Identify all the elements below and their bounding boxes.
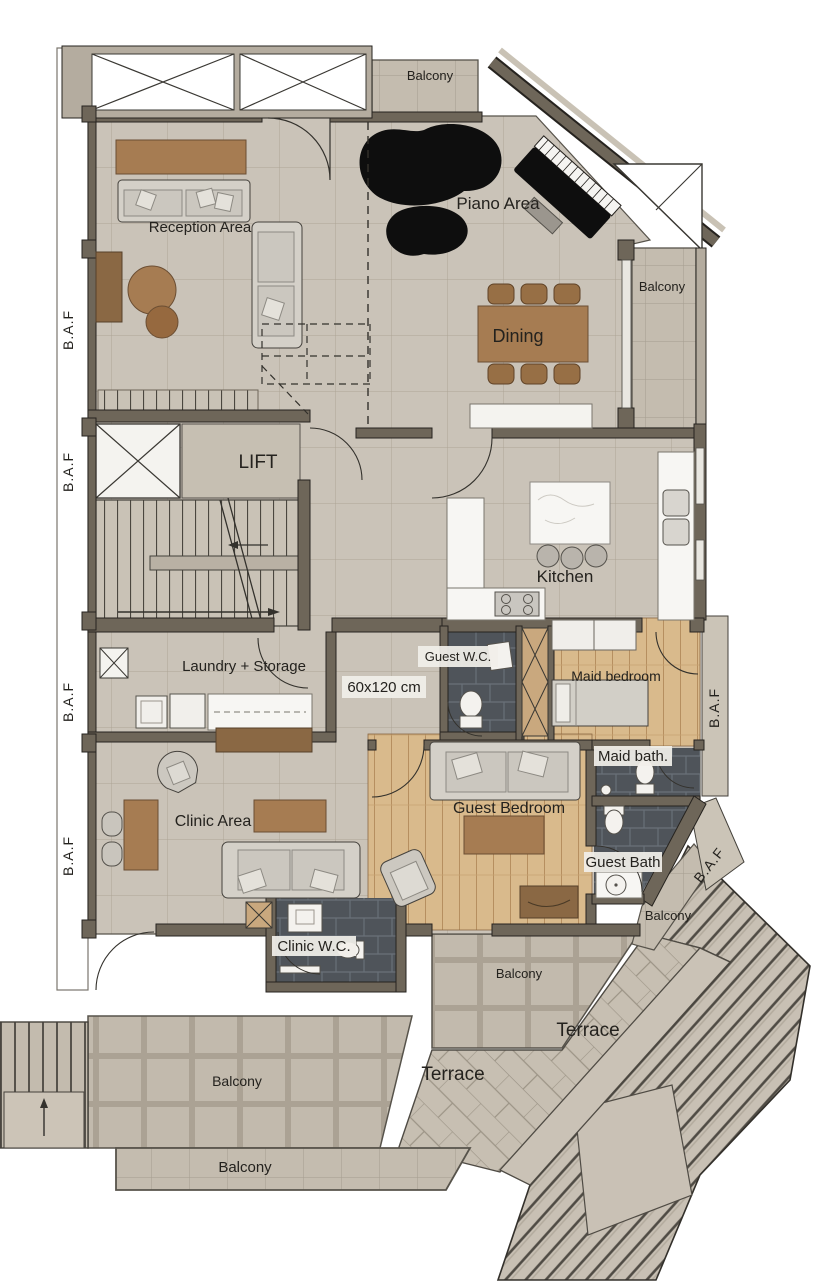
pier-6 [82, 920, 96, 938]
floor-plan-drawing: Balcony Reception Area Piano Area Balcon… [0, 0, 832, 1283]
label-balcony-strip: Balcony [218, 1159, 272, 1176]
label-balcony-right: Balcony [639, 279, 686, 294]
label-guest-bath: Guest Bath [585, 854, 660, 871]
shaft-wood-1 [522, 628, 548, 736]
reception-console [116, 140, 246, 174]
pier-dining-a [618, 240, 634, 260]
label-clinic: Clinic Area [175, 813, 252, 830]
wall-kitchen-top-b [492, 428, 702, 438]
label-reception: Reception Area [149, 219, 252, 236]
side-table [96, 252, 122, 322]
guest-bedroom-table [464, 816, 544, 854]
toilet-tank-maid [636, 784, 654, 794]
pier-5 [82, 734, 96, 752]
label-terrace-lower: Terrace [421, 1064, 484, 1085]
label-balcony-top: Balcony [407, 68, 454, 83]
wall-clinicwc-right [396, 896, 406, 992]
clinic-console [216, 728, 312, 752]
pillow [215, 193, 234, 212]
label-baf-1: B.A.F [60, 310, 76, 350]
stair-rail [150, 556, 300, 570]
toilet-guest-wc [460, 691, 482, 717]
parapet-right-balcony [696, 248, 706, 430]
wall-shaft-left [516, 626, 522, 740]
round-side-table [146, 306, 178, 338]
label-baf-right: B.A.F [706, 688, 722, 728]
pier-1 [82, 106, 96, 122]
dining-chair [488, 284, 514, 304]
desk-chair [102, 812, 122, 836]
label-maid-bedroom: Maid bedroom [571, 668, 661, 684]
floor-plan-page: Balcony Reception Area Piano Area Balcon… [0, 0, 832, 1283]
label-kitchen: Kitchen [537, 567, 594, 586]
wall-maidbath-bottom [592, 796, 700, 806]
dining-chair [521, 284, 547, 304]
stair-upper-run [98, 390, 258, 410]
wall-guestbed-top-pier [368, 740, 376, 750]
balcony-strip [116, 1148, 470, 1190]
window-kitchen-a [696, 448, 704, 504]
wall-maidbath-top-b [694, 740, 704, 750]
wall-bottom-c [492, 924, 640, 936]
label-balcony-large: Balcony [212, 1073, 262, 1089]
label-piano: Piano Area [456, 194, 540, 213]
balcony-door-arc [96, 932, 154, 990]
clinic-desk [124, 800, 158, 870]
cooktop [495, 592, 539, 616]
label-balcony-small: Balcony [645, 908, 692, 923]
toilet-tank [460, 716, 482, 728]
sink-maid-bath [601, 785, 611, 795]
sink-double-a [663, 490, 689, 516]
dining-chair [488, 364, 514, 384]
pillow [196, 188, 216, 208]
desk-chair [102, 842, 122, 866]
wall-left [88, 110, 96, 934]
dining-chair [554, 364, 580, 384]
wall-lift-top [88, 410, 310, 422]
label-baf-4: B.A.F [60, 836, 76, 876]
kitchen-pass-counter [470, 404, 592, 428]
pier-3 [82, 418, 96, 436]
label-dining: Dining [492, 326, 543, 346]
island-stool [585, 545, 607, 567]
dryer [170, 694, 205, 728]
maid-bed-pillow [556, 684, 570, 722]
toilet-bowl [605, 810, 623, 834]
balcony-right [632, 248, 696, 428]
label-guest-bedroom: Guest Bedroom [453, 800, 565, 817]
label-maid-bath: Maid bath. [598, 748, 668, 765]
wall-laundry-top-a [88, 618, 274, 632]
pier-4 [82, 612, 96, 630]
island-stool [561, 547, 583, 569]
wall-kitchen-top-a [356, 428, 432, 438]
sink-double-b [663, 519, 689, 545]
kitchen-island [530, 482, 610, 544]
round-coffee-table [128, 266, 176, 314]
clinic-coffee-table [254, 800, 326, 832]
dining-chair [521, 364, 547, 384]
wall-guestwc-left [440, 626, 448, 742]
wall-laundry-right [326, 632, 336, 742]
window-dining [622, 260, 631, 408]
wall-clinicwc-bottom [266, 982, 406, 992]
label-tile-size: 60x120 cm [347, 679, 420, 696]
label-lift: LIFT [238, 452, 277, 473]
basin-drain [614, 883, 617, 886]
label-terrace-upper: Terrace [556, 1020, 619, 1041]
piano-lounge-shape [386, 206, 467, 256]
pier-2 [82, 240, 96, 258]
sofa-cushion [258, 232, 294, 282]
dining-chair [554, 284, 580, 304]
label-balcony-mid: Balcony [496, 966, 543, 981]
label-laundry: Laundry + Storage [182, 658, 306, 675]
window-kitchen-b [696, 540, 704, 580]
island-stool [537, 545, 559, 567]
pier-dining-b [618, 408, 634, 430]
label-baf-2: B.A.F [60, 452, 76, 492]
wall-bottom-b [404, 924, 432, 936]
sink-clinic-wc [288, 904, 322, 932]
wall-laundry-top-b [332, 618, 442, 632]
toilet-guest-bath [604, 806, 624, 834]
label-guest-wc: Guest W.C. [425, 649, 491, 664]
label-clinic-wc: Clinic W.C. [277, 938, 350, 955]
wall-lift-right [298, 480, 310, 630]
label-baf-3: B.A.F [60, 682, 76, 722]
